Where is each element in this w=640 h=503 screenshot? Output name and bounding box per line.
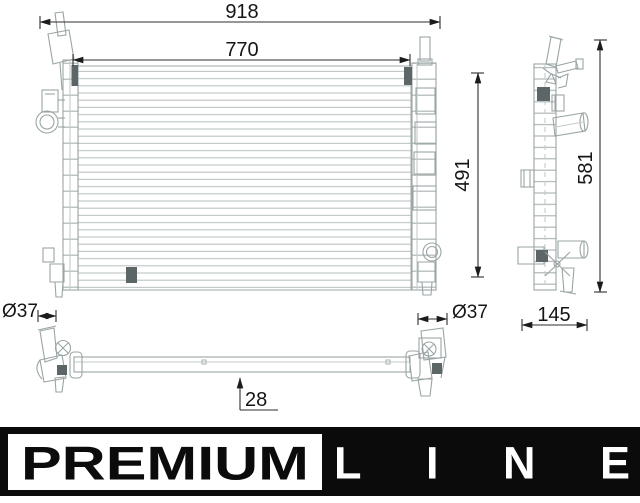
dim-581-label: 581 [575, 151, 597, 184]
side-filler-neck [546, 37, 561, 67]
filler-cap [36, 111, 58, 133]
bottom-right-port [409, 328, 446, 396]
front-right-tank [412, 37, 441, 295]
top-pipe [420, 37, 430, 61]
lower-outlet [50, 264, 64, 282]
bottom-view [37, 326, 446, 396]
dimension-left-port: Ø37 [2, 301, 56, 322]
front-left-tank [36, 12, 78, 297]
dim-28-label: 28 [245, 389, 267, 411]
dia-left-label: Ø37 [2, 301, 38, 322]
logo-premium-text: PREMIUM [21, 437, 309, 490]
dimension-overall-width: 918 [40, 1, 440, 29]
dimension-depth: 145 [522, 304, 587, 331]
dim-491-label: 491 [452, 158, 474, 191]
dimension-bottom-thickness: 28 [240, 378, 278, 411]
bottom-left-port [37, 326, 71, 392]
dimension-core-height: 491 [452, 73, 484, 277]
dia-right-label: Ø37 [452, 302, 488, 323]
upper-fitting [42, 90, 58, 112]
radiator-core [78, 66, 411, 290]
bottom-tube-bar [74, 357, 410, 372]
dim-918-label: 918 [225, 1, 258, 23]
dimension-overall-height: 581 [575, 40, 607, 292]
premium-line-logo: PREMIUM LINE [0, 427, 640, 496]
radiator-technical-drawing: 918 770 491 [0, 0, 640, 503]
dim-145-label: 145 [537, 304, 570, 326]
dimension-right-port: Ø37 [418, 302, 488, 325]
dim-770-label: 770 [225, 39, 258, 61]
dimension-core-width: 770 [73, 39, 410, 66]
